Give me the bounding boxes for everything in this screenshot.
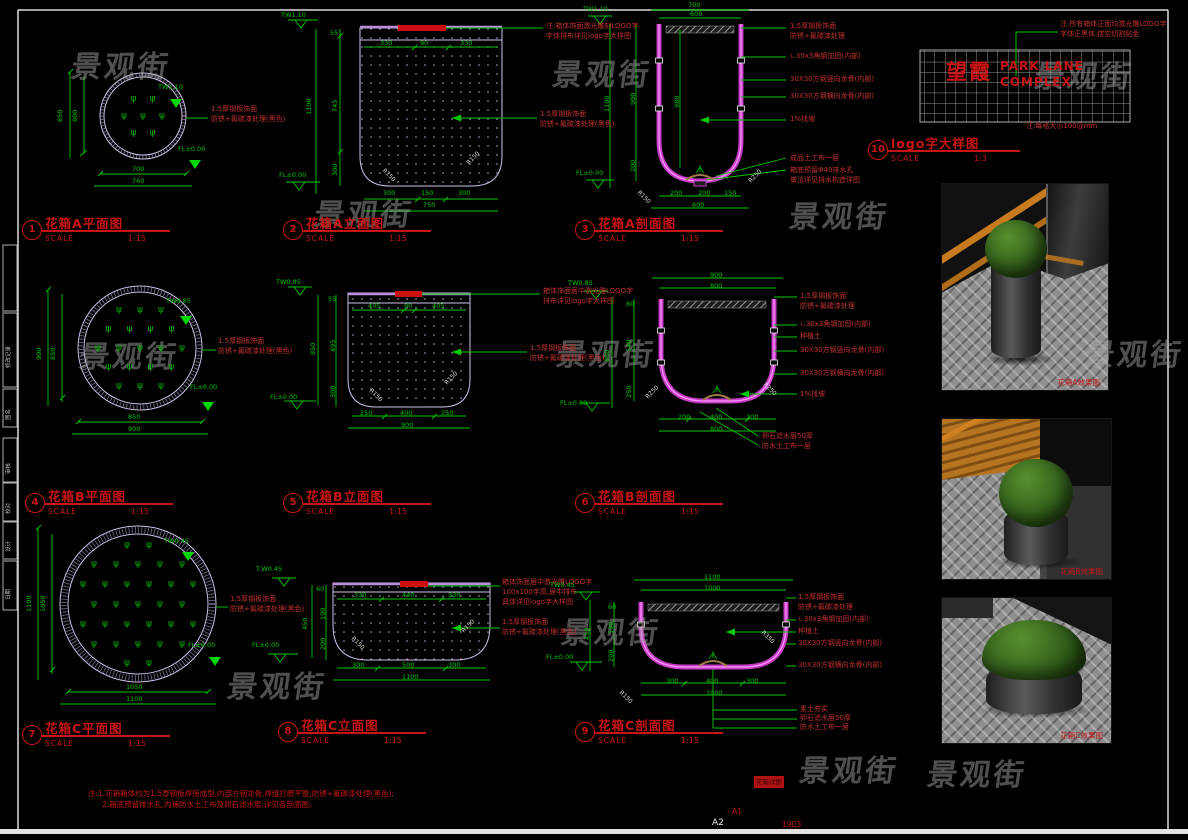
dimension-text: 330 [380, 40, 392, 47]
plant-symbol-icon: ψ [168, 580, 174, 589]
dimension-text: 450 [584, 628, 591, 640]
plant-symbol-icon: ψ [159, 112, 165, 121]
red-annotation-text: 做法详见排水构造详图 [790, 177, 860, 184]
render-image-planter-a: 花箱A效果图 [941, 183, 1109, 391]
red-annotation-text: 30X30方钢横向龙骨(内部) [800, 370, 884, 377]
drawing-title-block: 8花箱C立面图SCALE1:15 [278, 715, 478, 749]
red-annotation-text: 2.箱底预留排水孔,内铺防水土工布及卵石滤水层,详见各剖面图。 [102, 801, 316, 809]
title-underline [595, 503, 723, 505]
dimension-text: 150 [724, 190, 736, 197]
plant-symbol-icon: ψ [179, 344, 185, 353]
red-annotation-text: 1.5厚钢板饰面 [230, 596, 276, 603]
red-annotation-text: 1.5厚钢板饰面 [540, 111, 586, 118]
scale-label: SCALE [598, 736, 627, 745]
dimension-text: FL±0.00 [576, 170, 603, 177]
plant-symbol-icon: ψ [127, 363, 133, 372]
drawing-title-block: 9花箱C剖面图SCALE1:15 [575, 715, 775, 749]
dimension-text: 200 [670, 190, 682, 197]
drawing-title-block: 1花箱A平面图SCALE1:15 [22, 213, 222, 247]
plant-symbol-icon: ψ [190, 580, 196, 589]
frame-label: 设计 [7, 541, 13, 552]
dimension-text: 55 [330, 30, 338, 37]
frame-label: 图名 [7, 409, 13, 420]
red-annotation-text: 30X30方钢竖向龙骨(内部) [800, 347, 884, 354]
plant-symbol-icon: ψ [102, 580, 108, 589]
dimension-text: 1000 [706, 690, 723, 697]
red-annotation-text: 1.5厚钢板饰面 [798, 594, 844, 601]
dimension-text: 700 [688, 2, 700, 9]
scale-ratio: 1:15 [681, 736, 699, 745]
stamp-box: 花箱详图 [754, 776, 784, 788]
plant-symbol-icon: ψ [113, 560, 119, 569]
dimension-text: 540 [626, 340, 633, 352]
plant-symbol-icon: ψ [127, 325, 133, 334]
drawing-title-block: 2花箱A立面图SCALE1:15 [283, 213, 483, 247]
dimension-text: PARK LANE [1000, 60, 1084, 72]
dark-strip [942, 598, 993, 618]
dimension-text: 200 [630, 160, 637, 172]
dimension-text: 760 [132, 178, 144, 185]
dimension-text: 150 [421, 190, 433, 197]
plant-symbol-icon: ψ [157, 600, 163, 609]
title-underline [42, 230, 170, 232]
scale-label: SCALE [306, 234, 335, 243]
plant-symbol-icon: ψ [91, 640, 97, 649]
plant-symbol-icon: ψ [131, 95, 137, 104]
drawing-number-badge: 10 [868, 140, 888, 160]
dimension-text: 60 [626, 301, 634, 308]
plant-symbol-icon: ψ [169, 363, 175, 372]
dimension-text: 850 [604, 350, 611, 362]
red-annotation-text: ∟30x3角钢加固(内部) [790, 53, 861, 60]
plant-symbol-icon: ψ [137, 382, 143, 391]
scale-ratio: 1:15 [128, 739, 146, 748]
red-annotation-text: - A1 [727, 808, 742, 816]
plant-symbol-icon: ψ [179, 640, 185, 649]
dimension-text: FL±0.00 [560, 400, 587, 407]
scale-ratio: 1:15 [128, 234, 146, 243]
red-annotation-text: 防锈+氟碳漆处理(黑色) [230, 606, 304, 613]
dimension-text: 300 [458, 190, 470, 197]
dimension-text: 300 [352, 662, 364, 669]
red-annotation-text: 防锈+氟碳漆处理 [800, 303, 855, 310]
render-caption: 花箱C效果图 [1060, 730, 1103, 741]
dimension-text: 190 [608, 622, 615, 634]
red-annotation-text: 防锈+氟碳漆处理 [798, 604, 853, 611]
dimension-text: 980 [674, 96, 681, 108]
red-annotation-text: 防水土工布一层 [762, 443, 811, 450]
dimension-text: 745 [332, 100, 339, 112]
plant-symbol-icon: ψ [135, 560, 141, 569]
plant-symbol-icon: ψ [150, 95, 156, 104]
dimension-text: 200 [698, 190, 710, 197]
scale-label: SCALE [306, 507, 335, 516]
render-image-planter-c: 花箱C效果图 [941, 597, 1112, 744]
drawing-number-badge: 7 [22, 725, 42, 745]
render-image-planter-b: 花箱B效果图 [941, 418, 1112, 580]
red-annotation-text: 1.5厚钢板饰面 [790, 23, 836, 30]
stamp-label: 花箱详图 [754, 776, 784, 788]
dimension-text: 400 [400, 410, 412, 417]
dimension-text: 55 [328, 296, 336, 303]
dimension-text: 250 [360, 410, 372, 417]
dimension-text: 200 [608, 650, 615, 662]
plant-symbol-icon: ψ [137, 344, 143, 353]
dimension-text: 1050 [40, 595, 47, 612]
drawing-title-block: 4花箱B平面图SCALE1:15 [25, 486, 225, 520]
drawing-number-badge: 6 [575, 493, 595, 513]
dimension-text: TW0.85 [568, 280, 593, 287]
red-annotation-text: 30X30方钢横向龙骨(内部) [790, 93, 874, 100]
dimension-text: 900 [710, 272, 722, 279]
plant-symbol-icon: ψ [158, 344, 164, 353]
plant-symbol-icon: ψ [168, 620, 174, 629]
dimension-text: FL±0.00 [252, 642, 279, 649]
plant-symbol-icon: ψ [146, 620, 152, 629]
scale-ratio: 1:15 [131, 507, 149, 516]
title-underline [595, 732, 723, 734]
frame-label: 修改记录 [7, 346, 13, 368]
dimension-text: 450 [302, 618, 309, 630]
red-annotation-text: 排布详见logo字大样图 [543, 298, 614, 305]
dimension-text: TW0.85 [166, 298, 191, 305]
plant-symbol-icon: ψ [140, 112, 146, 121]
plant-symbol-icon: ψ [190, 620, 196, 629]
dimension-text: 1100 [402, 674, 419, 681]
scale-ratio: 1:15 [389, 507, 407, 516]
scale-label: SCALE [598, 507, 627, 516]
dimension-text: 800 [72, 110, 79, 122]
drawing-number-badge: 8 [278, 722, 298, 742]
plant-symbol-icon: ψ [169, 325, 175, 334]
plant-symbol-icon: ψ [131, 129, 137, 138]
dimension-text: FL±0.00 [279, 172, 306, 179]
dimension-text: T.W0.45 [256, 566, 282, 573]
drawing-title-block: 10logo字大样图SCALE1:3 [868, 133, 1068, 167]
plant-symbol-icon: ψ [113, 600, 119, 609]
red-annotation-text: 防锈+氟碳漆处理(黑色) [218, 348, 292, 355]
red-annotation-text: 字体正黑体,镂空切割贴金 [1060, 31, 1139, 38]
red-annotation-text: 1.5厚钢板饰面 [211, 106, 257, 113]
drawing-number-badge: 9 [575, 722, 595, 742]
moss-ball [985, 220, 1047, 278]
red-annotation-text: 30X30方钢横向龙骨(内部) [798, 662, 882, 669]
red-annotation-text: 具体详见logo字大样图 [502, 599, 573, 606]
title-underline [42, 735, 170, 737]
plant-symbol-icon: ψ [146, 580, 152, 589]
red-annotation-text: 30X30方钢竖向龙骨(内部) [790, 76, 874, 83]
dimension-text: 300 [448, 662, 460, 669]
dimension-text: TW0.45 [164, 538, 189, 545]
dimension-text: FL±0.00 [546, 654, 573, 661]
dimension-text: 60 [608, 604, 616, 611]
dimension-text: A2 [712, 819, 724, 828]
dimension-text: COMPLEX [1000, 76, 1072, 88]
dimension-text: 405 [432, 303, 444, 310]
dimension-text: 900 [128, 426, 140, 433]
plant-symbol-icon: ψ [135, 600, 141, 609]
red-annotation-text: 1.5厚钢板饰面 [502, 619, 548, 626]
elevation-a-geometry [286, 20, 543, 211]
scale-label: SCALE [45, 234, 74, 243]
plant-symbol-icon: ψ [137, 306, 143, 315]
red-annotation-text: 防水土工布一层 [800, 724, 849, 731]
plant-symbol-icon: ψ [116, 382, 122, 391]
red-annotation-text: 1.5厚钢板饰面 [218, 338, 264, 345]
drawing-title-block: 5花箱B立面图SCALE1:15 [283, 486, 483, 520]
red-annotation-text: ∟30x3角钢加固(内部) [800, 321, 871, 328]
red-annotation-text: 1.5厚钢板饰面 [800, 293, 846, 300]
dimension-text: 1100 [704, 574, 721, 581]
red-annotation-text: 种植土 [798, 628, 819, 635]
dimension-text: FL±0.00 [178, 146, 205, 153]
red-annotation-text: 30X30方钢竖向龙骨(内部) [798, 640, 882, 647]
dimension-text: 330 [460, 40, 472, 47]
frame-label: 校对 [7, 503, 13, 514]
dimension-text: 200 [678, 414, 690, 421]
red-annotation-text: 防锈+氟碳漆处理(黑色) [540, 121, 614, 128]
plant-symbol-icon: ψ [158, 382, 164, 391]
dimension-text: 1100 [604, 95, 611, 112]
dimension-text: 900 [401, 422, 413, 429]
frame-label: 日期 [7, 589, 13, 600]
plant-symbol-icon: ψ [124, 580, 130, 589]
plant-symbol-icon: ψ [179, 560, 185, 569]
plant-symbol-icon: ψ [124, 620, 130, 629]
plant-symbol-icon: ψ [124, 541, 130, 550]
red-annotation-text: 素土夯实 [800, 706, 828, 713]
dimension-text: 900 [36, 348, 43, 360]
plant-symbol-icon: ψ [80, 580, 86, 589]
dimension-text: 330 [354, 592, 366, 599]
dimension-text: 330 [448, 592, 460, 599]
dimension-text: 90 [420, 40, 428, 47]
dimension-text: 300 [332, 164, 339, 176]
dimension-text: 60 [316, 586, 324, 593]
dimension-text: 190 [320, 608, 327, 620]
dimension-text: 600 [692, 202, 704, 209]
dimension-text: 700 [132, 166, 144, 173]
plant-symbol-icon: ψ [91, 600, 97, 609]
red-annotation-text: 箱体饰面居中激光雕LOGO字 [543, 288, 633, 295]
dimension-text: 1100 [306, 98, 313, 115]
scale-ratio: 1:15 [681, 234, 699, 243]
plant-symbol-icon: ψ [113, 640, 119, 649]
scale-ratio: 1:3 [974, 154, 987, 163]
dimension-text: 300 [746, 678, 758, 685]
red-annotation-text: 成品土工布一层 [790, 155, 839, 162]
red-annotation-text: 100x100字高,居中排布 [502, 589, 577, 596]
dimension-text: 800 [710, 283, 722, 290]
plant-symbol-icon: ψ [91, 560, 97, 569]
title-underline [595, 230, 723, 232]
red-annotation-text: 注:每格大小100@mm [1026, 123, 1097, 130]
plant-symbol-icon: ψ [150, 129, 156, 138]
dimension-text: 200 [320, 638, 327, 650]
render-caption: 花箱B效果图 [1060, 566, 1103, 577]
scale-ratio: 1:15 [681, 507, 699, 516]
title-underline [45, 503, 173, 505]
red-annotation-text: 注:箱体饰面激光雕刻LOGO字 [546, 23, 638, 30]
dimension-text: 望霞 [946, 62, 992, 83]
red-annotation-text: 种植土 [800, 333, 821, 340]
drawing-number-badge: 3 [575, 220, 595, 240]
plant-symbol-icon: ψ [116, 306, 122, 315]
plant-symbol-icon: ψ [146, 541, 152, 550]
plant-symbol-icon: ψ [95, 344, 101, 353]
moss-ball [999, 459, 1073, 527]
scale-label: SCALE [301, 736, 330, 745]
dimension-text: 850 [128, 414, 140, 421]
red-annotation-text: 注:1.花箱箱体均为1.5厚钢板焊接成型,内部方钢龙骨,焊缝打磨平整,防锈+氟碳… [88, 790, 394, 798]
dimension-text: 850 [57, 110, 64, 122]
red-annotation-text: 箱体饰面居中激光雕LOGO字 [502, 579, 592, 586]
plant-symbol-icon: ψ [179, 600, 185, 609]
red-annotation-text: 防锈+氟碳漆处理(黑色) [211, 116, 285, 123]
dimension-text: 1050 [126, 684, 143, 691]
drawing-title-block: 6花箱B剖面图SCALE1:15 [575, 486, 775, 520]
dimension-text: FL±0.00 [190, 384, 217, 391]
plant-symbol-icon: ψ [158, 306, 164, 315]
plant-symbol-icon: ψ [157, 640, 163, 649]
dimension-text: TW0.85 [276, 279, 301, 286]
dimension-text: TW0.45 [550, 582, 575, 589]
plant-symbol-icon: ψ [148, 363, 154, 372]
frame-margin-boxes [3, 245, 17, 610]
plant-symbol-icon: ψ [106, 325, 112, 334]
dimension-text: 440 [402, 592, 414, 599]
dimension-text: TW1.10 [583, 6, 608, 13]
drawing-number-badge: 5 [283, 493, 303, 513]
scale-label: SCALE [891, 154, 920, 163]
dimension-text: 400 [710, 414, 722, 421]
drawing-title-block: 3花箱A剖面图SCALE1:15 [575, 213, 775, 247]
dimension-text: FL±0.00 [188, 642, 215, 649]
dimension-text: 250 [626, 386, 633, 398]
plant-symbol-icon: ψ [157, 560, 163, 569]
dimension-text: 300 [330, 386, 337, 398]
frame-label: 审核 [7, 463, 13, 474]
scale-label: SCALE [598, 234, 627, 243]
title-underline [303, 230, 431, 232]
red-annotation-text: 1%找坡 [800, 391, 825, 398]
dimension-text: 1100 [26, 595, 33, 612]
dimension-text: 500 [402, 662, 414, 669]
red-annotation-text: 防锈+氟碳漆处理 [790, 33, 845, 40]
scale-label: SCALE [48, 507, 77, 516]
dimension-text: TW1.10 [158, 84, 183, 91]
plan-b-geometry [46, 286, 216, 434]
scale-ratio: 1:15 [389, 234, 407, 243]
red-annotation-text: ∟30x3角钢加固(内部) [798, 616, 869, 623]
dimension-text: 600 [690, 11, 702, 18]
drawing-number-badge: 1 [22, 220, 42, 240]
plant-symbol-icon: ψ [116, 344, 122, 353]
red-annotation-text: 1.5厚钢板饰面 [530, 345, 576, 352]
plant-symbol-icon: ψ [106, 363, 112, 372]
render-caption: 花箱A效果图 [1057, 377, 1100, 388]
title-underline [888, 150, 1020, 152]
plant-symbol-icon: ψ [148, 325, 154, 334]
red-annotation-text: 防锈+氟碳漆处理(黑色) [502, 629, 576, 636]
plant-symbol-icon: ψ [146, 659, 152, 668]
dimension-text: 750 [423, 202, 435, 209]
drawing-number-badge: 2 [283, 220, 303, 240]
drawing-title-block: 7花箱C平面图SCALE1:15 [22, 718, 222, 752]
dimension-text: 250 [441, 410, 453, 417]
dimension-text: 300 [666, 678, 678, 685]
scale-label: SCALE [45, 739, 74, 748]
dimension-text: FL±0.00 [270, 394, 297, 401]
dimension-text: 400 [706, 678, 718, 685]
title-underline [298, 732, 426, 734]
dimension-text: 800 [710, 426, 722, 433]
plant-symbol-icon: ψ [80, 620, 86, 629]
dimension-text: 1000 [704, 585, 721, 592]
dimension-text: 90 [404, 303, 412, 310]
cad-sheet-canvas[interactable]: 花箱A效果图 花箱B效果图 花箱C效果图 花箱详图 景观街景观街景观街景观街景观… [0, 0, 1188, 840]
dimension-text: 405 [368, 303, 380, 310]
plant-symbol-icon: ψ [102, 620, 108, 629]
plant-symbol-icon: ψ [124, 659, 130, 668]
dimension-text: 300 [383, 190, 395, 197]
red-annotation-text: 注:所有箱体正面均激光雕LOGO字 [1060, 21, 1166, 28]
red-annotation-text: 卵石滤水层50厚 [762, 433, 813, 440]
scale-ratio: 1:15 [384, 736, 402, 745]
dimension-text: 850 [50, 348, 57, 360]
red-annotation-text: 1903 [782, 821, 801, 829]
section-c-geometry [570, 580, 797, 728]
dimension-text: TW1.10 [281, 12, 306, 19]
dimension-text: 900 [630, 93, 637, 105]
plant-symbol-icon: ψ [121, 112, 127, 121]
plan-c-geometry [36, 525, 298, 704]
title-underline [303, 503, 431, 505]
dimension-text: 495 [330, 340, 337, 352]
dimension-text: 1100 [126, 696, 143, 703]
red-annotation-text: 防锈+氟碳漆处理(黑色) [530, 355, 604, 362]
dimension-text: 850 [310, 343, 317, 355]
plant-symbol-icon: ψ [135, 640, 141, 649]
red-annotation-text: 卵石滤水层50厚 [800, 715, 851, 722]
dimension-text: 200 [746, 414, 758, 421]
red-annotation-text: 1%找坡 [790, 116, 815, 123]
red-annotation-text: 字体排布详见logo字大样图 [546, 33, 631, 40]
red-annotation-text: 箱底预留Φ40排水孔 [790, 167, 853, 174]
drawing-number-badge: 4 [25, 493, 45, 513]
